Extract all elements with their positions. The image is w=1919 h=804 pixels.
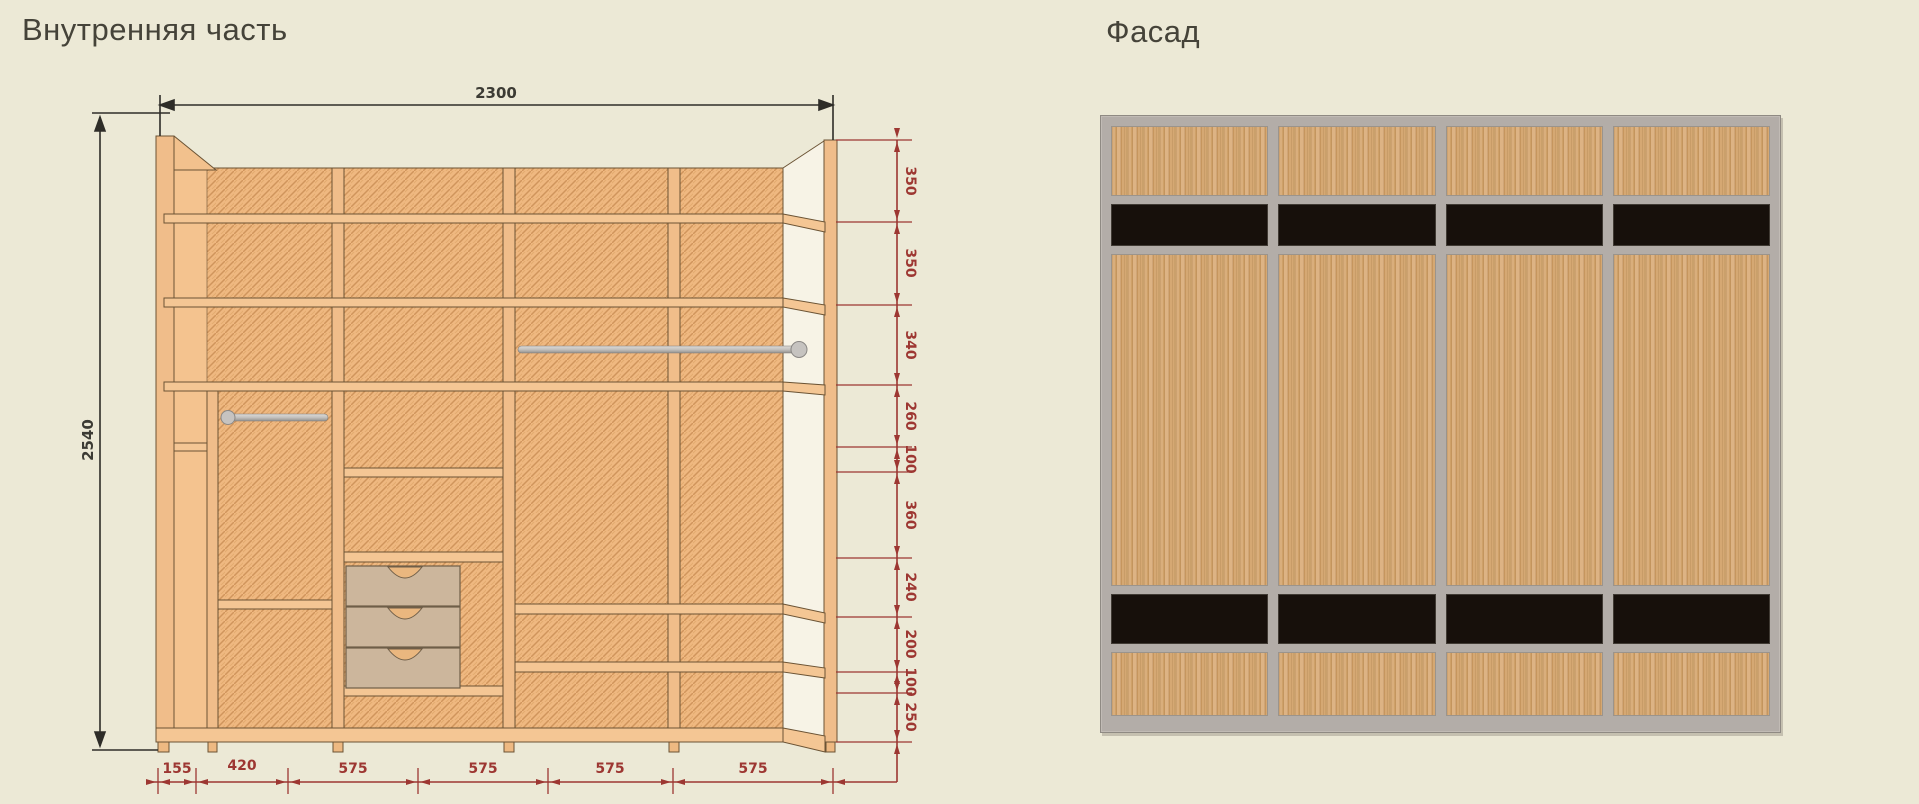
- dim-label-width: 2300: [475, 84, 517, 102]
- internal-drawing: 2300 2540 350 350 340 260 100 360 240 20…: [0, 0, 960, 804]
- right-dimension-labels: 350 350 340 260 100 360 240 200 100 250: [902, 166, 918, 731]
- svg-text:360: 360: [902, 500, 918, 529]
- plinth-feet: [158, 742, 835, 752]
- right-hanging-rod: [518, 346, 798, 353]
- facade-drawing: [1100, 115, 1781, 733]
- left-side-panel-face: [174, 168, 207, 742]
- svg-text:340: 340: [902, 330, 918, 359]
- facade-view-title: Фасад: [1106, 14, 1200, 50]
- facade-wood-panel: [1278, 126, 1435, 196]
- svg-text:575: 575: [468, 761, 497, 777]
- facade-black-strip: [1613, 204, 1770, 246]
- svg-text:240: 240: [902, 572, 918, 601]
- svg-text:575: 575: [738, 761, 767, 777]
- svg-text:260: 260: [902, 401, 918, 430]
- facade-wood-panel: [1111, 652, 1268, 716]
- svg-text:575: 575: [338, 761, 367, 777]
- rod-mount: [221, 411, 235, 425]
- facade-black-strip: [1446, 594, 1603, 644]
- facade-door: [1446, 126, 1603, 716]
- back-panel: [199, 168, 783, 742]
- facade-wood-panel: [1613, 652, 1770, 716]
- facade-wood-panel: [1446, 126, 1603, 196]
- facade-black-strip: [1278, 594, 1435, 644]
- facade-wood-panel: [1278, 254, 1435, 587]
- facade-door: [1111, 126, 1268, 716]
- right-side-panel-face: [783, 141, 824, 742]
- facade-black-strip: [1446, 204, 1603, 246]
- facade-wood-panel: [1446, 254, 1603, 587]
- dim-label-height: 2540: [79, 419, 97, 461]
- svg-text:100: 100: [902, 667, 918, 696]
- facade-wood-panel: [1446, 652, 1603, 716]
- facade-black-strip: [1111, 204, 1268, 246]
- facade-wood-panel: [1278, 652, 1435, 716]
- facade-black-strip: [1278, 204, 1435, 246]
- svg-text:200: 200: [902, 629, 918, 658]
- facade-black-strip: [1613, 594, 1770, 644]
- bottom-dimension-labels: 155 420 575 575 575 575: [162, 758, 767, 777]
- svg-text:350: 350: [902, 248, 918, 277]
- svg-text:100: 100: [902, 444, 918, 473]
- rod-mount: [791, 342, 807, 358]
- svg-text:155: 155: [162, 761, 191, 777]
- svg-text:350: 350: [902, 166, 918, 195]
- svg-text:420: 420: [227, 758, 256, 774]
- facade-wood-panel: [1613, 254, 1770, 587]
- svg-text:575: 575: [595, 761, 624, 777]
- facade-door: [1278, 126, 1435, 716]
- svg-text:250: 250: [902, 702, 918, 731]
- facade-wood-panel: [1111, 126, 1268, 196]
- drawer-stack: [346, 566, 460, 688]
- facade-wood-panel: [1613, 126, 1770, 196]
- facade-wood-panel: [1111, 254, 1268, 587]
- facade-door: [1613, 126, 1770, 716]
- facade-black-strip: [1111, 594, 1268, 644]
- left-hanging-rod: [224, 414, 328, 421]
